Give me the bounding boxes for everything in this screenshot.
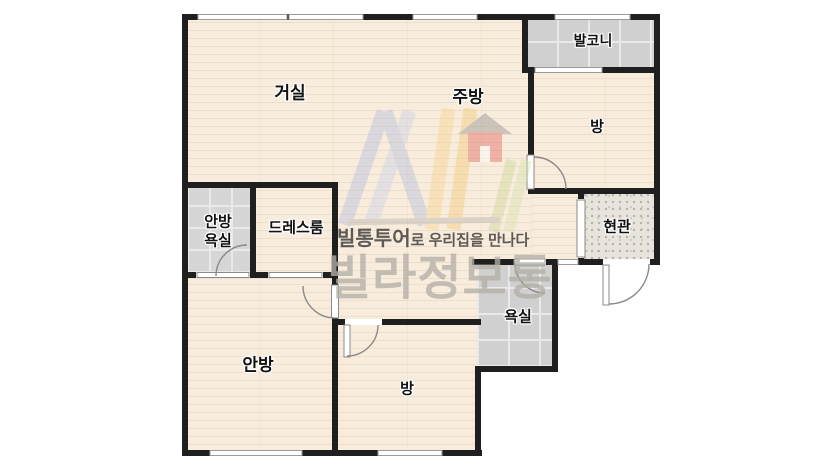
label-entrance: 현관 <box>603 219 631 238</box>
walls-layer <box>0 0 840 472</box>
label-room-top: 방 <box>590 119 604 138</box>
wall-segments <box>182 14 660 456</box>
label-living-room: 거실 <box>274 82 305 103</box>
label-balcony: 발코니 <box>574 32 613 50</box>
label-master-bath-line2: 욕실 <box>204 232 232 249</box>
label-kitchen: 주방 <box>452 86 483 107</box>
label-master-bath: 안방 욕실 <box>204 213 232 251</box>
floor-plan: 빌통투어로 우리집을 만나다 빌라정보통 거실 주방 발코니 방 현관 안방 욕… <box>0 0 840 472</box>
label-room-bottom: 방 <box>400 381 414 400</box>
label-master-bath-line1: 안방 <box>204 213 232 230</box>
label-dressroom: 드레스룸 <box>268 220 323 239</box>
label-bathroom: 욕실 <box>504 309 532 328</box>
label-master-bedroom: 안방 <box>242 354 273 375</box>
